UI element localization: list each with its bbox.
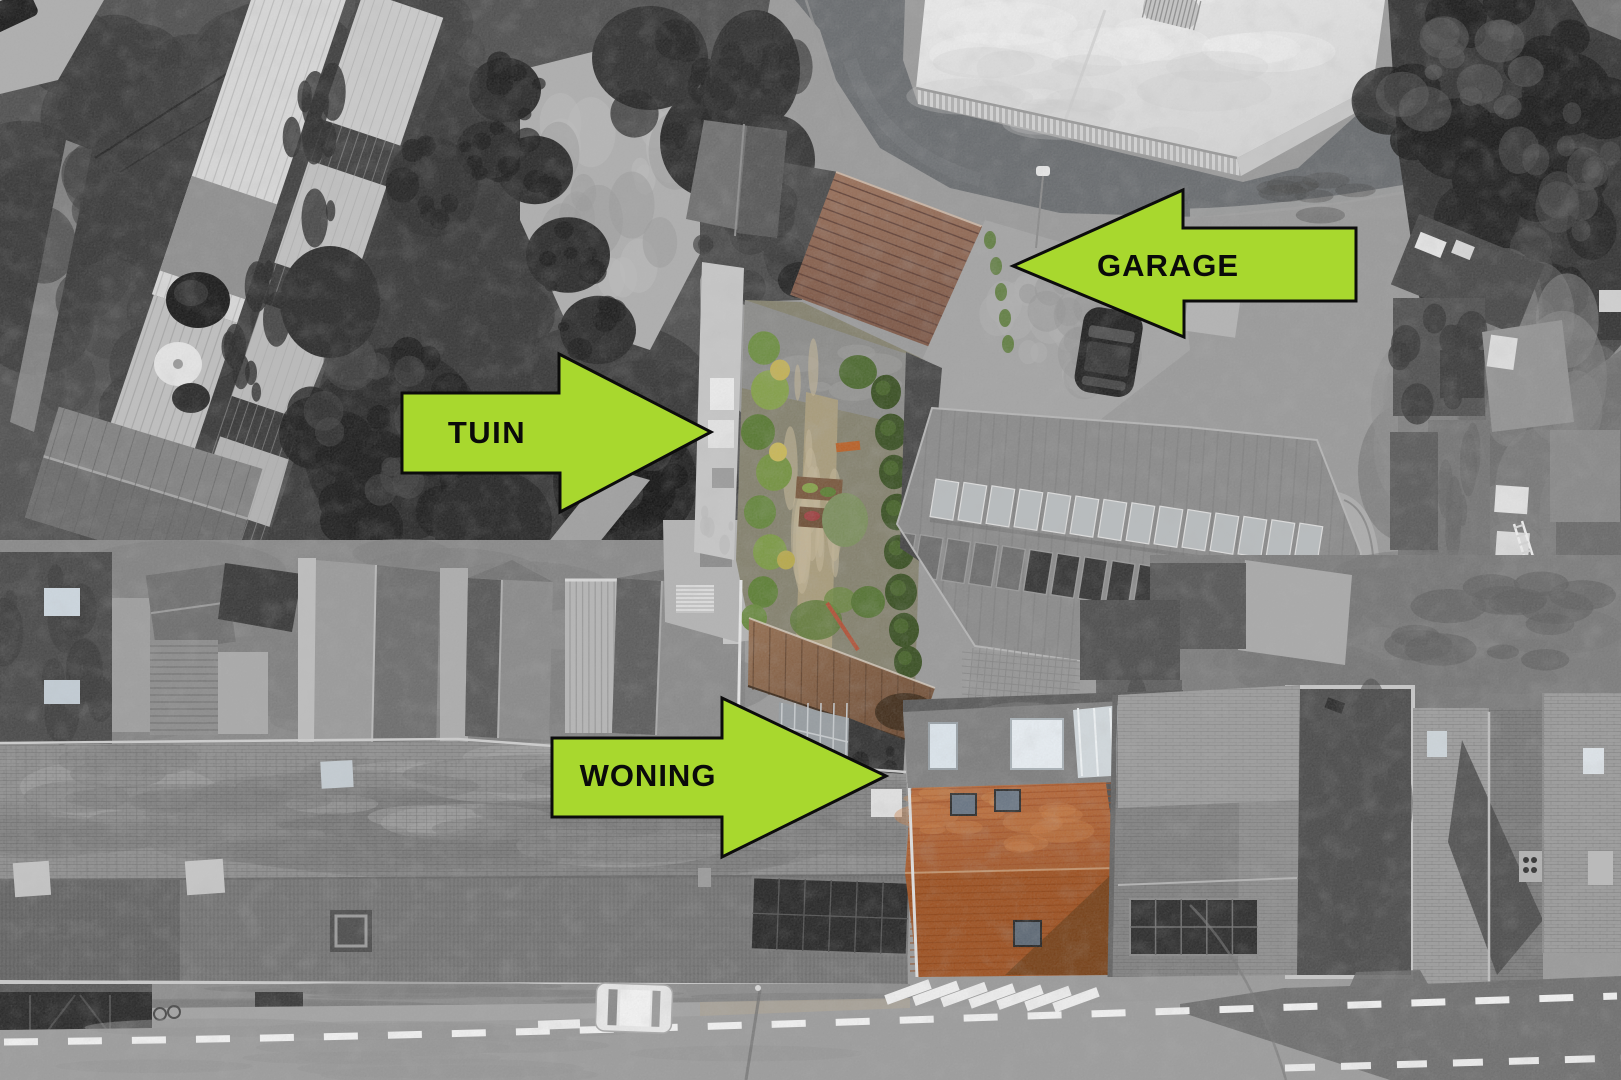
svg-text:WONING: WONING	[580, 758, 717, 793]
svg-text:TUIN: TUIN	[448, 415, 526, 450]
svg-text:GARAGE: GARAGE	[1097, 248, 1239, 283]
